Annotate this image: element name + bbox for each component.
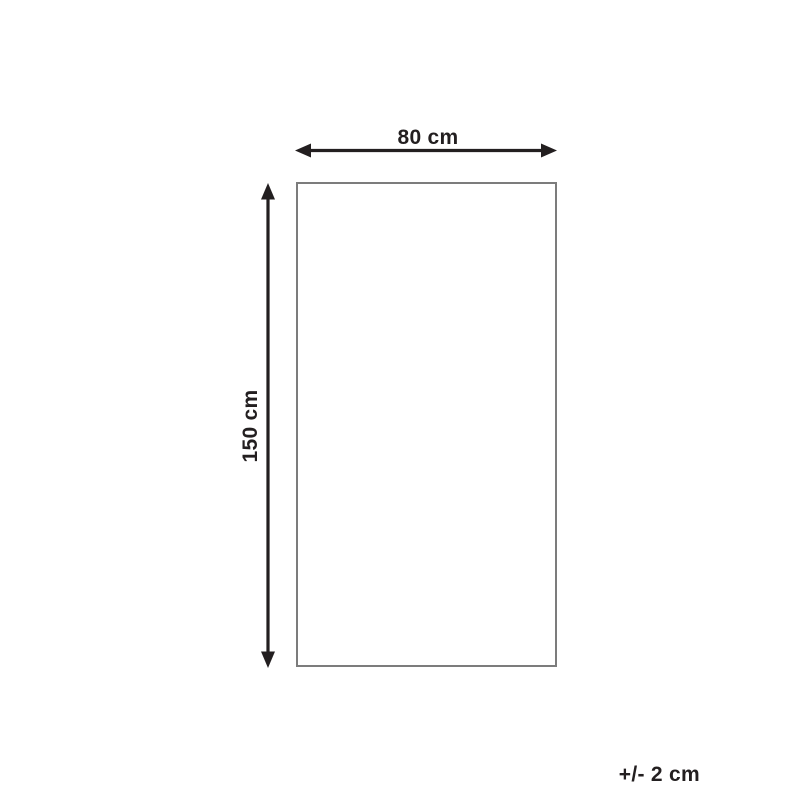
product-outline-rectangle <box>297 183 556 666</box>
dimension-diagram <box>0 0 800 800</box>
width-dimension-label: 80 cm <box>297 127 559 149</box>
height-arrowhead-bottom-icon <box>261 652 275 669</box>
tolerance-label: +/- 2 cm <box>619 764 700 786</box>
height-dimension-label: 150 cm <box>240 389 262 462</box>
height-arrowhead-top-icon <box>261 183 275 200</box>
dimension-diagram-canvas: 80 cm 150 cm +/- 2 cm <box>0 0 800 800</box>
height-dimension-arrow <box>261 183 275 668</box>
